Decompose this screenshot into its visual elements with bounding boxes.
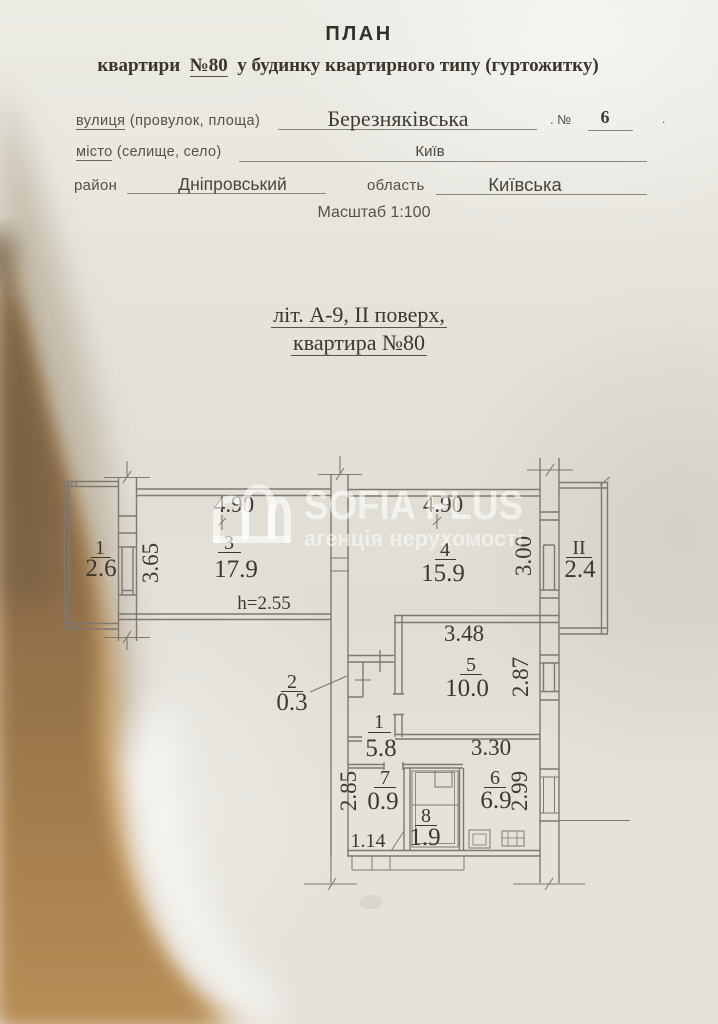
svg-text:SOFIA PLUS: SOFIA PLUS: [304, 482, 523, 528]
svg-text:агенція нерухомості: агенція нерухомості: [304, 526, 523, 551]
